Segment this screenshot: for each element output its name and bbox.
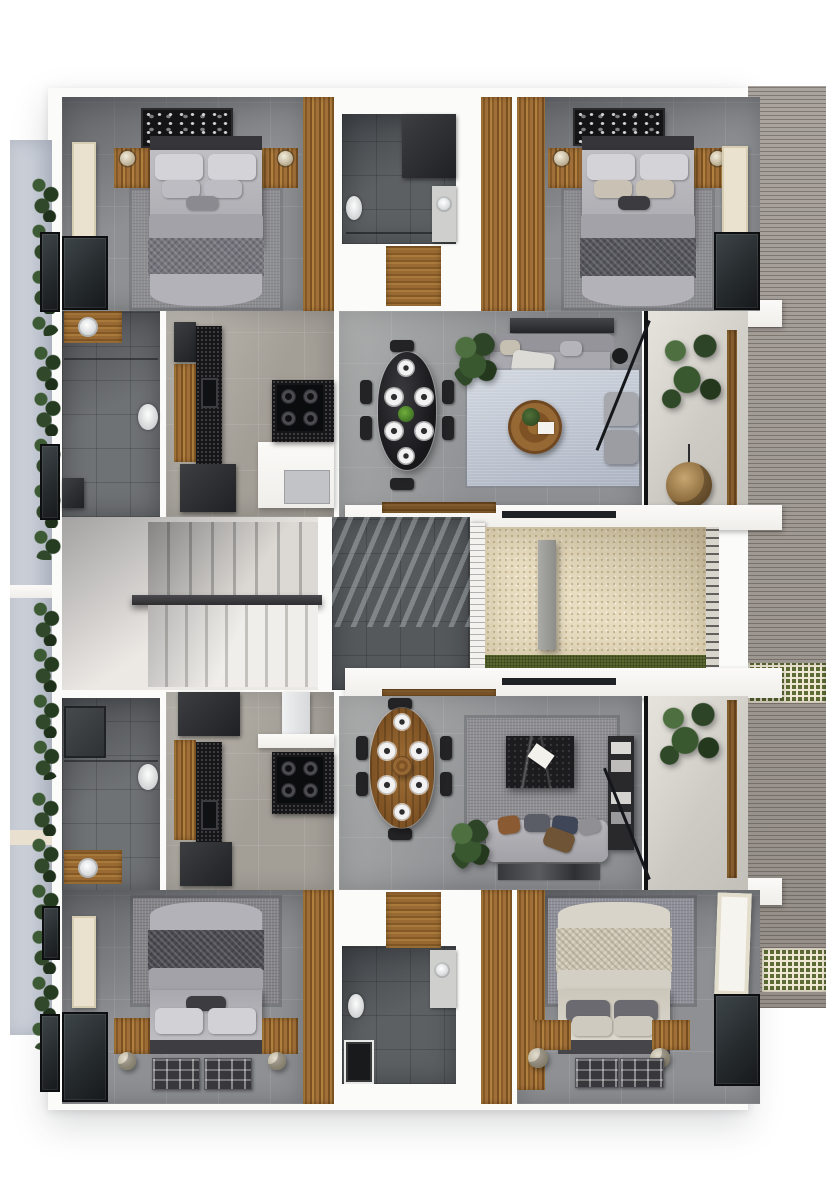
hall-wood-floor (386, 892, 441, 948)
island-front (284, 470, 330, 504)
vanity-basin (78, 858, 98, 878)
dining-chair (356, 772, 368, 796)
accent-pillow (186, 196, 218, 210)
clerestory-glass (502, 511, 616, 518)
table-centerpiece (392, 756, 412, 776)
hob-burner (303, 761, 318, 776)
hob-burner (303, 783, 318, 798)
plate-setting (378, 742, 396, 760)
bed-drape (150, 902, 262, 932)
accent-mat (152, 1058, 200, 1090)
pillow (208, 1008, 256, 1034)
kitchen-cabinet-wood (174, 740, 196, 840)
bed-blanket (556, 928, 672, 972)
table-lamp (278, 151, 293, 166)
sofa-pillow (497, 815, 521, 836)
kitchen-shelf (258, 734, 334, 748)
courtyard-concrete-wall (538, 540, 556, 650)
nightstand (114, 1018, 150, 1054)
dining-chair (360, 380, 372, 404)
glass-door-frame (644, 696, 648, 890)
toilet (346, 196, 362, 220)
dining-chair (390, 340, 414, 352)
planter-plants (32, 600, 60, 780)
floor-lamp (612, 348, 628, 364)
corner-window (62, 236, 108, 310)
vanity-basin (436, 196, 452, 212)
plate-setting (398, 360, 414, 376)
tall-cabinet (178, 692, 240, 736)
plate-setting (415, 388, 433, 406)
accent-mat (575, 1058, 619, 1088)
plate-setting (385, 422, 403, 440)
hob-burner (303, 411, 318, 426)
toilet (138, 764, 158, 790)
balcony-wood-screen (727, 330, 737, 508)
potted-plant (450, 818, 490, 870)
glass-door-frame (644, 311, 648, 517)
accent-mat (204, 1058, 252, 1090)
bed-drape (582, 276, 694, 306)
runner-rug (498, 864, 600, 880)
vanity-basin (434, 962, 450, 978)
wall-mirror (72, 916, 96, 1008)
facade-window (42, 906, 60, 960)
plate-setting (410, 776, 428, 794)
plate-setting (394, 804, 410, 820)
bed-blanket (148, 930, 264, 970)
sofa-pillow (560, 341, 582, 356)
shower-glass (64, 760, 158, 762)
accent-pillow (618, 196, 650, 210)
kitchen-sink (201, 800, 218, 830)
vertical-garden-trellis (706, 527, 719, 667)
walkway-wall (10, 585, 52, 598)
table-lamp (120, 151, 135, 166)
bed-blanket (580, 238, 696, 278)
plate-setting (385, 388, 403, 406)
bed-sheet-fold (149, 968, 263, 992)
closet-wood-floor (517, 97, 545, 311)
deck-lattice-planting (762, 948, 826, 992)
kitchen-sink (201, 378, 218, 408)
stair-flight-lower (148, 605, 318, 687)
corner-window (714, 994, 760, 1086)
nightstand (533, 1020, 571, 1050)
wall-mirror (722, 146, 748, 236)
hob-burner (281, 783, 296, 798)
dining-chair (360, 416, 372, 440)
plate-setting (410, 742, 428, 760)
slatted-screen-wall (470, 523, 485, 683)
entry-bench (382, 502, 496, 513)
armchair-cushion (604, 430, 638, 464)
accent-mat (620, 1058, 664, 1088)
balcony-plant (650, 696, 728, 770)
table-lamp (554, 151, 569, 166)
oven-appliance (180, 464, 236, 512)
pillow (614, 1016, 654, 1036)
oven-appliance (180, 842, 232, 886)
basket (268, 1052, 286, 1070)
pillow (587, 154, 635, 180)
coffee-table-book (538, 422, 554, 434)
tall-cabinet (174, 322, 196, 362)
table-centerpiece-plant (398, 406, 414, 422)
wall-mirror (72, 142, 96, 238)
plate-setting (398, 448, 414, 464)
pillow (155, 1008, 203, 1034)
basket (528, 1048, 548, 1068)
corner-window (714, 232, 760, 310)
vanity (430, 950, 456, 1008)
stair-handrail (132, 595, 322, 605)
pillow (640, 154, 688, 180)
shower-tray (64, 706, 106, 758)
wardrobe-panel (303, 890, 334, 1104)
bed-drape (150, 274, 262, 306)
nightstand (652, 1020, 690, 1050)
potted-plant (452, 330, 498, 388)
hob-burner (281, 389, 296, 404)
toilet (138, 404, 158, 430)
facade-window (40, 232, 60, 312)
dining-chair (442, 380, 454, 404)
dining-chair (356, 736, 368, 760)
balcony-plant (652, 322, 730, 418)
pillow (155, 154, 203, 180)
hob-burner (303, 389, 318, 404)
vanity (432, 186, 456, 242)
plate-setting (394, 714, 410, 730)
wardrobe-panel (481, 890, 512, 1104)
kitchen-cabinet-wood (174, 364, 196, 462)
bathroom-closet (402, 114, 456, 178)
wardrobe-panel (481, 97, 512, 311)
bed-headboard (150, 1040, 262, 1054)
dining-chair (390, 478, 414, 490)
plate-setting (378, 776, 396, 794)
vanity-basin (78, 317, 98, 337)
shower-tray (346, 1042, 372, 1082)
nightstand (262, 1018, 298, 1054)
bed-sheet-fold (581, 214, 695, 240)
corridor-floor (332, 517, 470, 690)
wall-art-panel (714, 892, 752, 995)
pillow (208, 154, 256, 180)
courtyard-grass-strip (485, 655, 706, 668)
shower-glass (64, 358, 158, 360)
bed-blanket (148, 238, 264, 276)
bath-cabinet (62, 478, 84, 508)
hob-burner (281, 411, 296, 426)
refrigerator (282, 692, 310, 734)
corner-window (62, 1012, 108, 1102)
balcony-wood-screen (727, 700, 737, 878)
plate-setting (415, 422, 433, 440)
bed-sheet-fold (557, 970, 671, 992)
bed-drape (558, 902, 670, 930)
basket (118, 1052, 136, 1070)
facade-window (40, 1014, 60, 1092)
dining-chair (440, 772, 452, 796)
bed-sheet-fold (149, 214, 263, 240)
shelf-linens (611, 742, 631, 754)
floor-plan-render (0, 0, 834, 1200)
wardrobe-panel (303, 97, 334, 311)
dining-chair (440, 736, 452, 760)
facade-window (40, 444, 60, 520)
hanging-chair (666, 462, 712, 508)
toilet (348, 994, 364, 1018)
tv-console (510, 318, 614, 333)
dining-chair (442, 416, 454, 440)
shelf-linens (611, 760, 631, 772)
hall-wood-floor (386, 246, 441, 306)
dining-chair (388, 828, 412, 840)
courtyard-gravel (485, 527, 706, 655)
clerestory-glass (502, 678, 616, 685)
stair-flight-upper (148, 522, 318, 596)
hob-burner (281, 761, 296, 776)
pillow (572, 1016, 612, 1036)
